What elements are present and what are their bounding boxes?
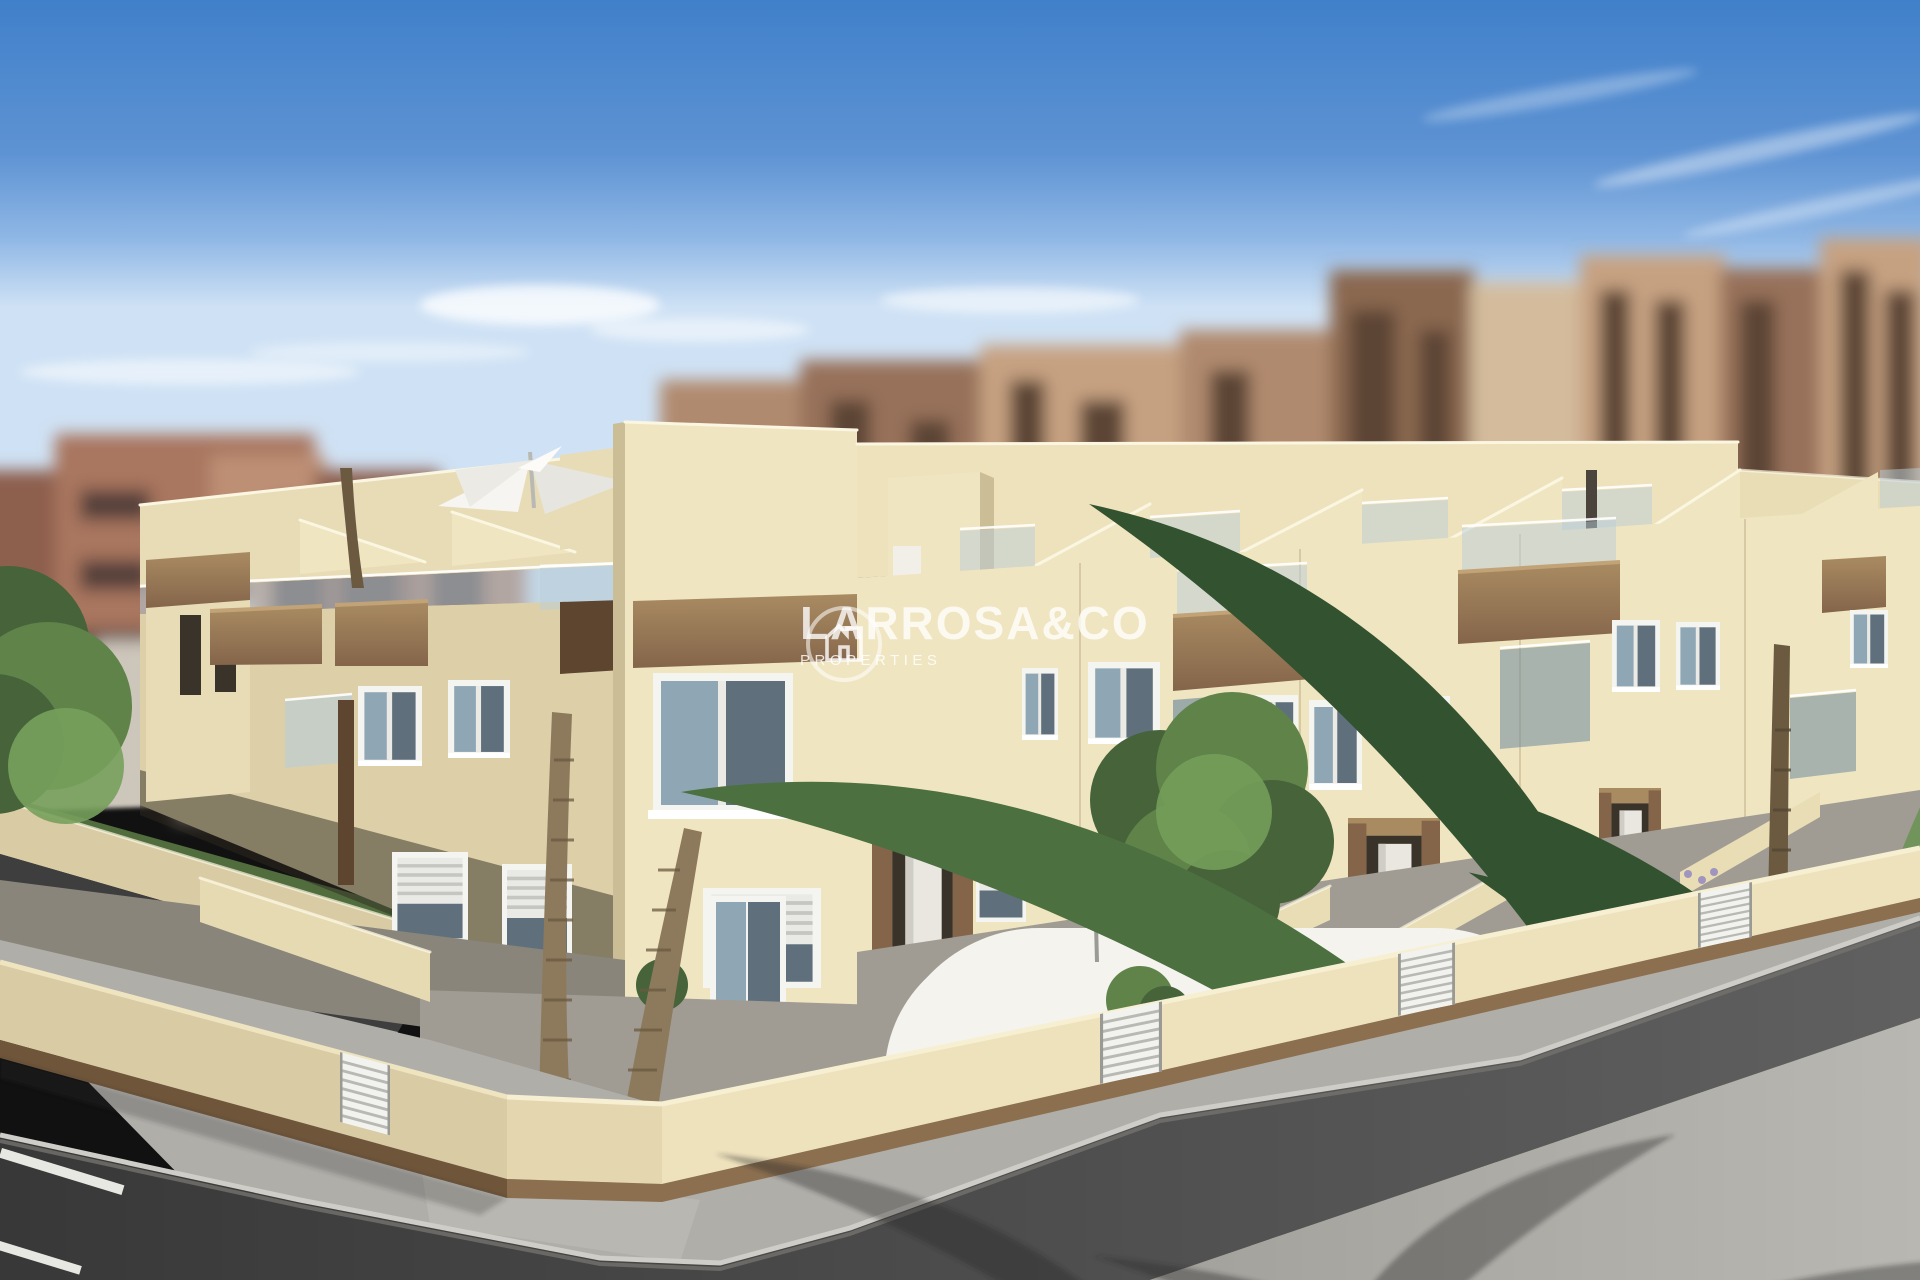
bulkhead-door: [893, 546, 921, 578]
window: [358, 686, 422, 766]
window: [448, 680, 510, 758]
wood-post: [338, 700, 354, 885]
fence-corner: [507, 1097, 662, 1184]
fence-gate: [1398, 942, 1455, 1016]
terrace-wood-parapet-side: [560, 600, 622, 674]
render-canvas: [0, 0, 1920, 1280]
fence-gate: [340, 1052, 390, 1135]
tower-wood-band: [633, 594, 857, 668]
property-render-scene: LARROSA&CO PROPERTIES: [0, 0, 1920, 1280]
shutter-window: [392, 852, 468, 944]
balcony-wood-box: [210, 606, 322, 665]
wood-cap: [146, 552, 250, 608]
fence-gate: [1100, 1001, 1162, 1084]
slot-window: [180, 615, 201, 695]
balcony-wood-box: [335, 601, 428, 666]
fence-gate: [1698, 882, 1752, 948]
